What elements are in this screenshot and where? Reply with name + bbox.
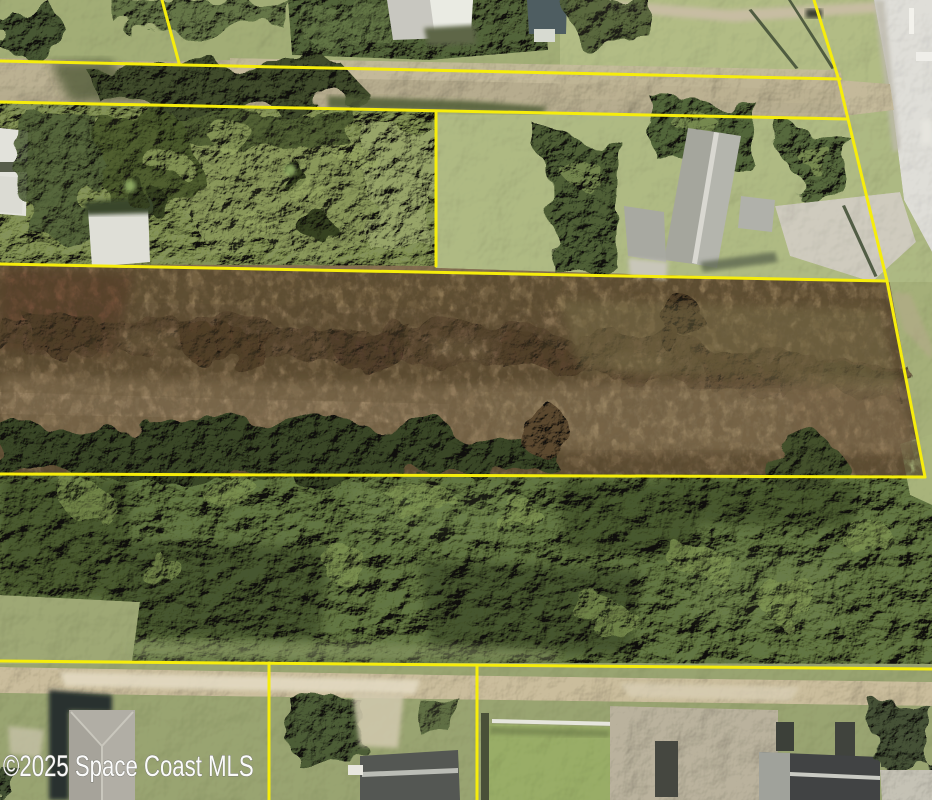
svg-text:©2025 Space Coast MLS: ©2025 Space Coast MLS bbox=[3, 749, 254, 783]
